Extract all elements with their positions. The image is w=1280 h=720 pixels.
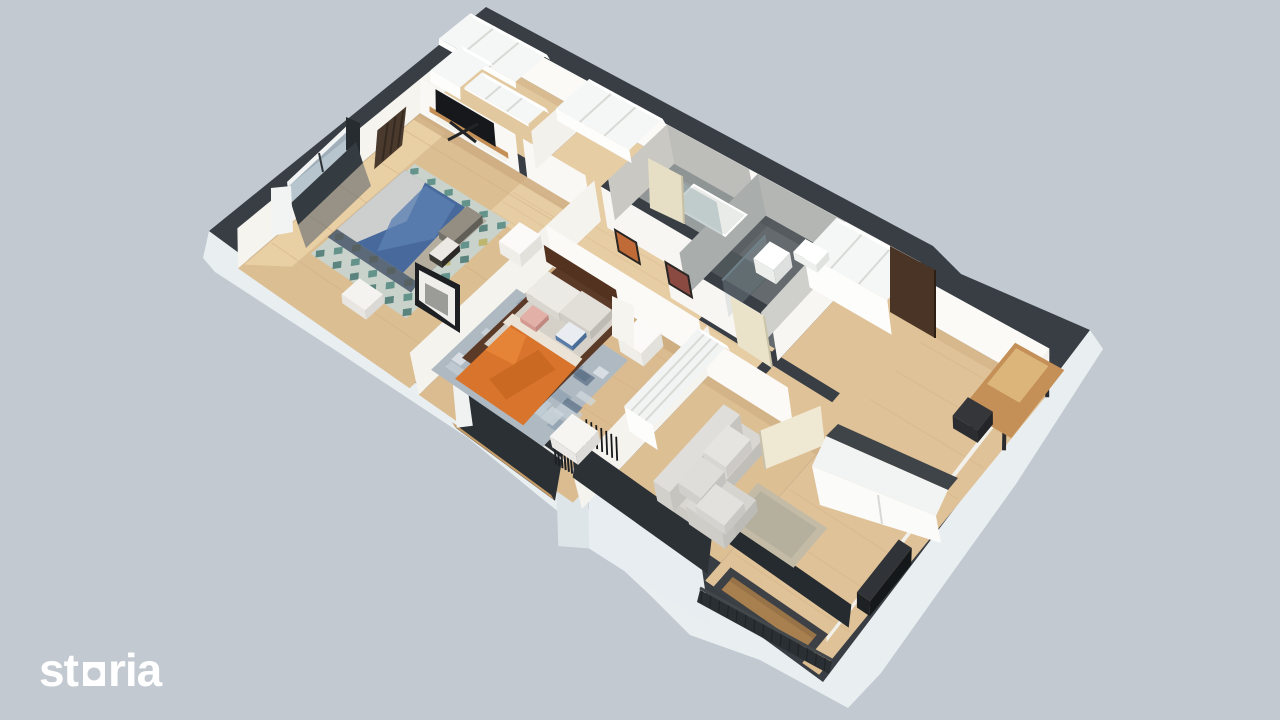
svg-text:st: st — [39, 644, 79, 696]
svg-text:ria: ria — [108, 644, 163, 696]
